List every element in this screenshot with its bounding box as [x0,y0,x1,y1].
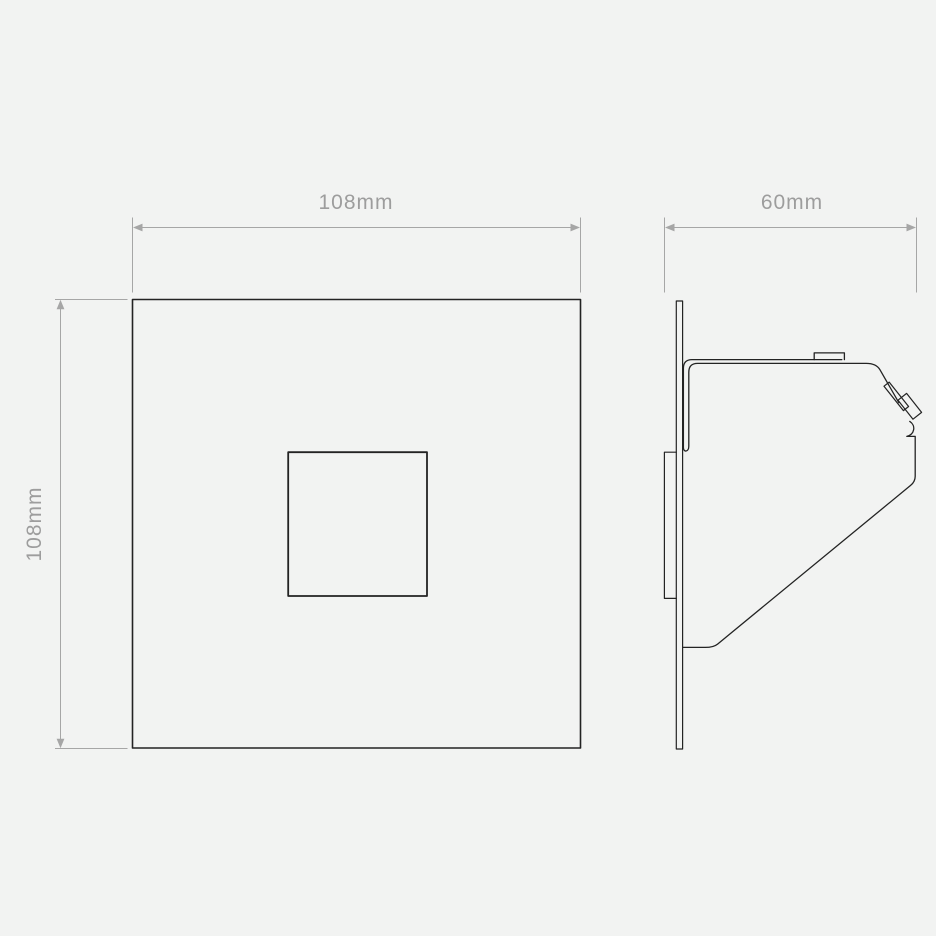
side-recess-box [664,452,676,598]
front-light-aperture [288,452,427,596]
extension-lines [665,218,917,293]
dimension-front-width [133,218,581,293]
technical-drawing-canvas: 108mm 60mm 108mm [0,0,936,936]
dimension-side-depth [665,218,917,293]
side-view [664,301,921,749]
extension-lines [55,300,128,749]
arrowhead-left-icon [665,224,675,232]
front-height-label: 108mm [23,486,47,561]
arrowhead-right-icon [907,224,917,232]
arrowhead-up-icon [57,300,65,310]
drawing-svg [0,0,936,936]
side-top-tab [814,353,844,360]
side-faceplate [676,301,682,749]
side-spring-clip-tab [898,393,922,419]
side-depth-label: 60mm [761,191,823,215]
front-faceplate-outline [133,300,581,749]
side-body-upper-sheet [683,360,898,451]
arrowhead-down-icon [57,739,65,749]
side-spring-clip-strip [884,382,909,411]
arrowhead-right-icon [571,224,581,232]
front-width-label: 108mm [318,191,393,215]
front-view [133,300,581,749]
extension-lines [133,218,581,293]
side-body-lower-outline [683,421,916,647]
dimension-front-height [55,300,128,749]
arrowhead-left-icon [133,224,143,232]
